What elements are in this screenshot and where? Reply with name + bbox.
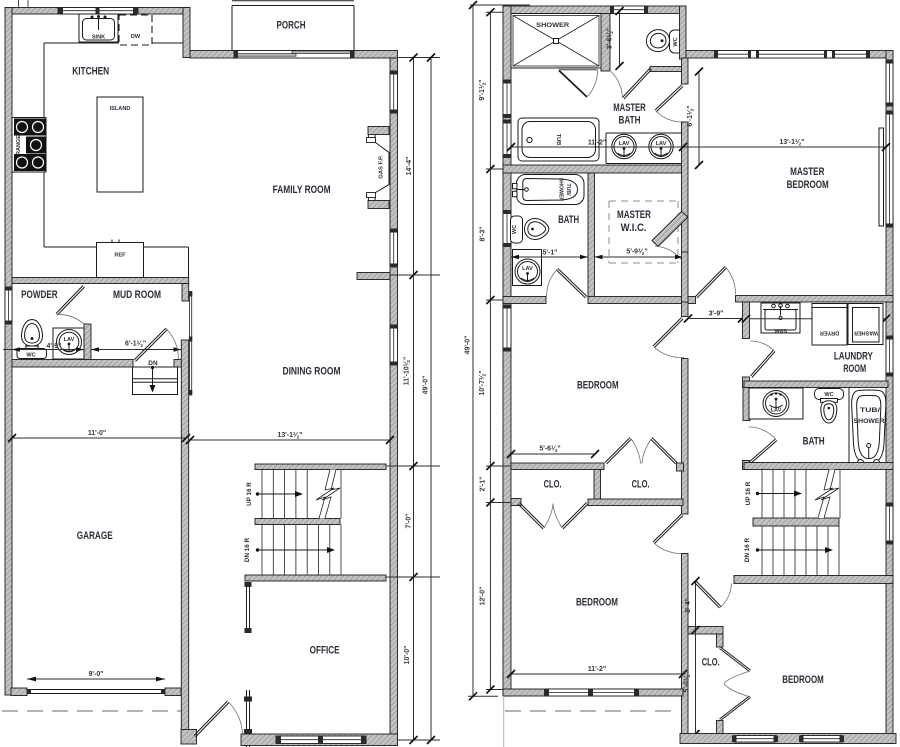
svg-text:5'-61⁄4": 5'-61⁄4" (539, 445, 560, 454)
svg-text:5'-1": 5'-1" (543, 250, 558, 257)
svg-text:SHOWER: SHOWER (536, 22, 569, 29)
svg-text:RANGE: RANGE (16, 135, 22, 155)
svg-text:3'-9": 3'-9" (709, 311, 724, 318)
svg-text:LAV: LAV (771, 408, 782, 414)
svg-text:11'-0": 11'-0" (88, 430, 106, 437)
svg-text:FAMILY ROOM: FAMILY ROOM (273, 184, 331, 196)
svg-text:SHOWER: SHOWER (854, 418, 885, 425)
svg-text:DRYER: DRYER (820, 330, 839, 336)
svg-text:UP 16 R: UP 16 R (745, 481, 752, 505)
svg-text:BATH: BATH (803, 436, 825, 448)
svg-text:WC: WC (673, 37, 679, 46)
svg-text:OFFICE: OFFICE (310, 645, 340, 657)
svg-text:7'-0": 7'-0" (406, 514, 413, 529)
svg-text:LAV: LAV (656, 141, 667, 147)
svg-text:WASHER: WASHER (854, 330, 878, 336)
svg-text:SHOWER: SHOWER (558, 178, 564, 202)
svg-text:10'-71⁄2": 10'-71⁄2" (478, 370, 487, 395)
svg-text:49'-0": 49'-0" (465, 336, 472, 355)
svg-text:5'-01⁄2": 5'-01⁄2" (683, 671, 692, 692)
svg-text:6'-11⁄2": 6'-11⁄2" (125, 340, 146, 349)
svg-text:DN: DN (148, 360, 158, 367)
svg-text:POWDER: POWDER (21, 289, 58, 301)
svg-text:LAV: LAV (64, 337, 75, 343)
svg-text:MASTER: MASTER (617, 209, 651, 221)
svg-text:TUB: TUB (555, 134, 561, 146)
svg-text:ROOM: ROOM (843, 363, 866, 375)
svg-text:SINK: SINK (774, 327, 787, 333)
svg-text:PORCH: PORCH (277, 20, 306, 32)
svg-text:GAS F.P.: GAS F.P. (379, 155, 385, 179)
svg-text:WC: WC (26, 353, 35, 359)
svg-text:6'-11⁄2": 6'-11⁄2" (686, 105, 695, 126)
svg-text:4'-9": 4'-9" (47, 343, 62, 350)
svg-text:ISLAND: ISLAND (110, 106, 131, 112)
svg-text:5'-91⁄2": 5'-91⁄2" (626, 248, 647, 257)
svg-text:W.I.C.: W.I.C. (621, 222, 647, 234)
svg-text:GARAGE: GARAGE (77, 530, 113, 542)
svg-text:MASTER: MASTER (790, 166, 824, 178)
svg-text:DN 16 R: DN 16 R (744, 537, 751, 562)
svg-text:8'-3": 8'-3" (480, 227, 487, 242)
svg-text:REF: REF (114, 253, 126, 259)
svg-text:9'-0": 9'-0" (89, 671, 104, 678)
svg-text:TUB/: TUB/ (565, 183, 571, 196)
svg-text:CLO.: CLO. (702, 657, 720, 669)
svg-text:13'-11⁄2": 13'-11⁄2" (277, 431, 302, 440)
svg-text:11'-2": 11'-2" (588, 140, 606, 147)
svg-text:BEDROOM: BEDROOM (782, 674, 824, 686)
svg-text:BATH: BATH (619, 115, 641, 127)
svg-text:DINING ROOM: DINING ROOM (283, 366, 341, 378)
svg-text:49'-0": 49'-0" (423, 376, 430, 395)
svg-text:DW: DW (131, 34, 141, 40)
svg-text:CLO.: CLO. (632, 479, 650, 491)
svg-text:LAV: LAV (619, 141, 630, 147)
svg-text:2'-1": 2'-1" (480, 477, 487, 492)
svg-text:10'-0": 10'-0" (404, 646, 411, 665)
svg-text:BEDROOM: BEDROOM (787, 179, 829, 191)
svg-text:BEDROOM: BEDROOM (576, 597, 618, 609)
svg-text:MASTER: MASTER (613, 102, 646, 114)
svg-text:9'-11⁄2": 9'-11⁄2" (478, 79, 487, 100)
svg-text:11'-2": 11'-2" (588, 666, 606, 673)
svg-text:14'-4": 14'-4" (406, 157, 413, 176)
svg-text:BATH: BATH (558, 214, 579, 226)
svg-text:WC: WC (512, 225, 518, 234)
svg-text:LAV: LAV (522, 266, 533, 272)
svg-text:UP 16 R: UP 16 R (246, 482, 253, 506)
svg-text:SINK: SINK (92, 35, 105, 41)
svg-text:3'-61⁄2": 3'-61⁄2" (606, 28, 615, 49)
svg-text:TUB/: TUB/ (860, 407, 880, 414)
svg-text:MUD ROOM: MUD ROOM (113, 289, 161, 301)
svg-text:BEDROOM: BEDROOM (577, 379, 619, 391)
svg-text:12'-0": 12'-0" (480, 587, 487, 606)
svg-text:13'-11⁄2": 13'-11⁄2" (779, 138, 804, 147)
svg-text:CLO.: CLO. (544, 479, 562, 491)
svg-text:DN 16 R: DN 16 R (244, 537, 251, 562)
svg-text:KITCHEN: KITCHEN (72, 66, 109, 78)
svg-text:WC: WC (824, 392, 833, 398)
svg-text:3'-4": 3'-4" (685, 598, 692, 613)
svg-text:LAUNDRY: LAUNDRY (834, 351, 873, 363)
